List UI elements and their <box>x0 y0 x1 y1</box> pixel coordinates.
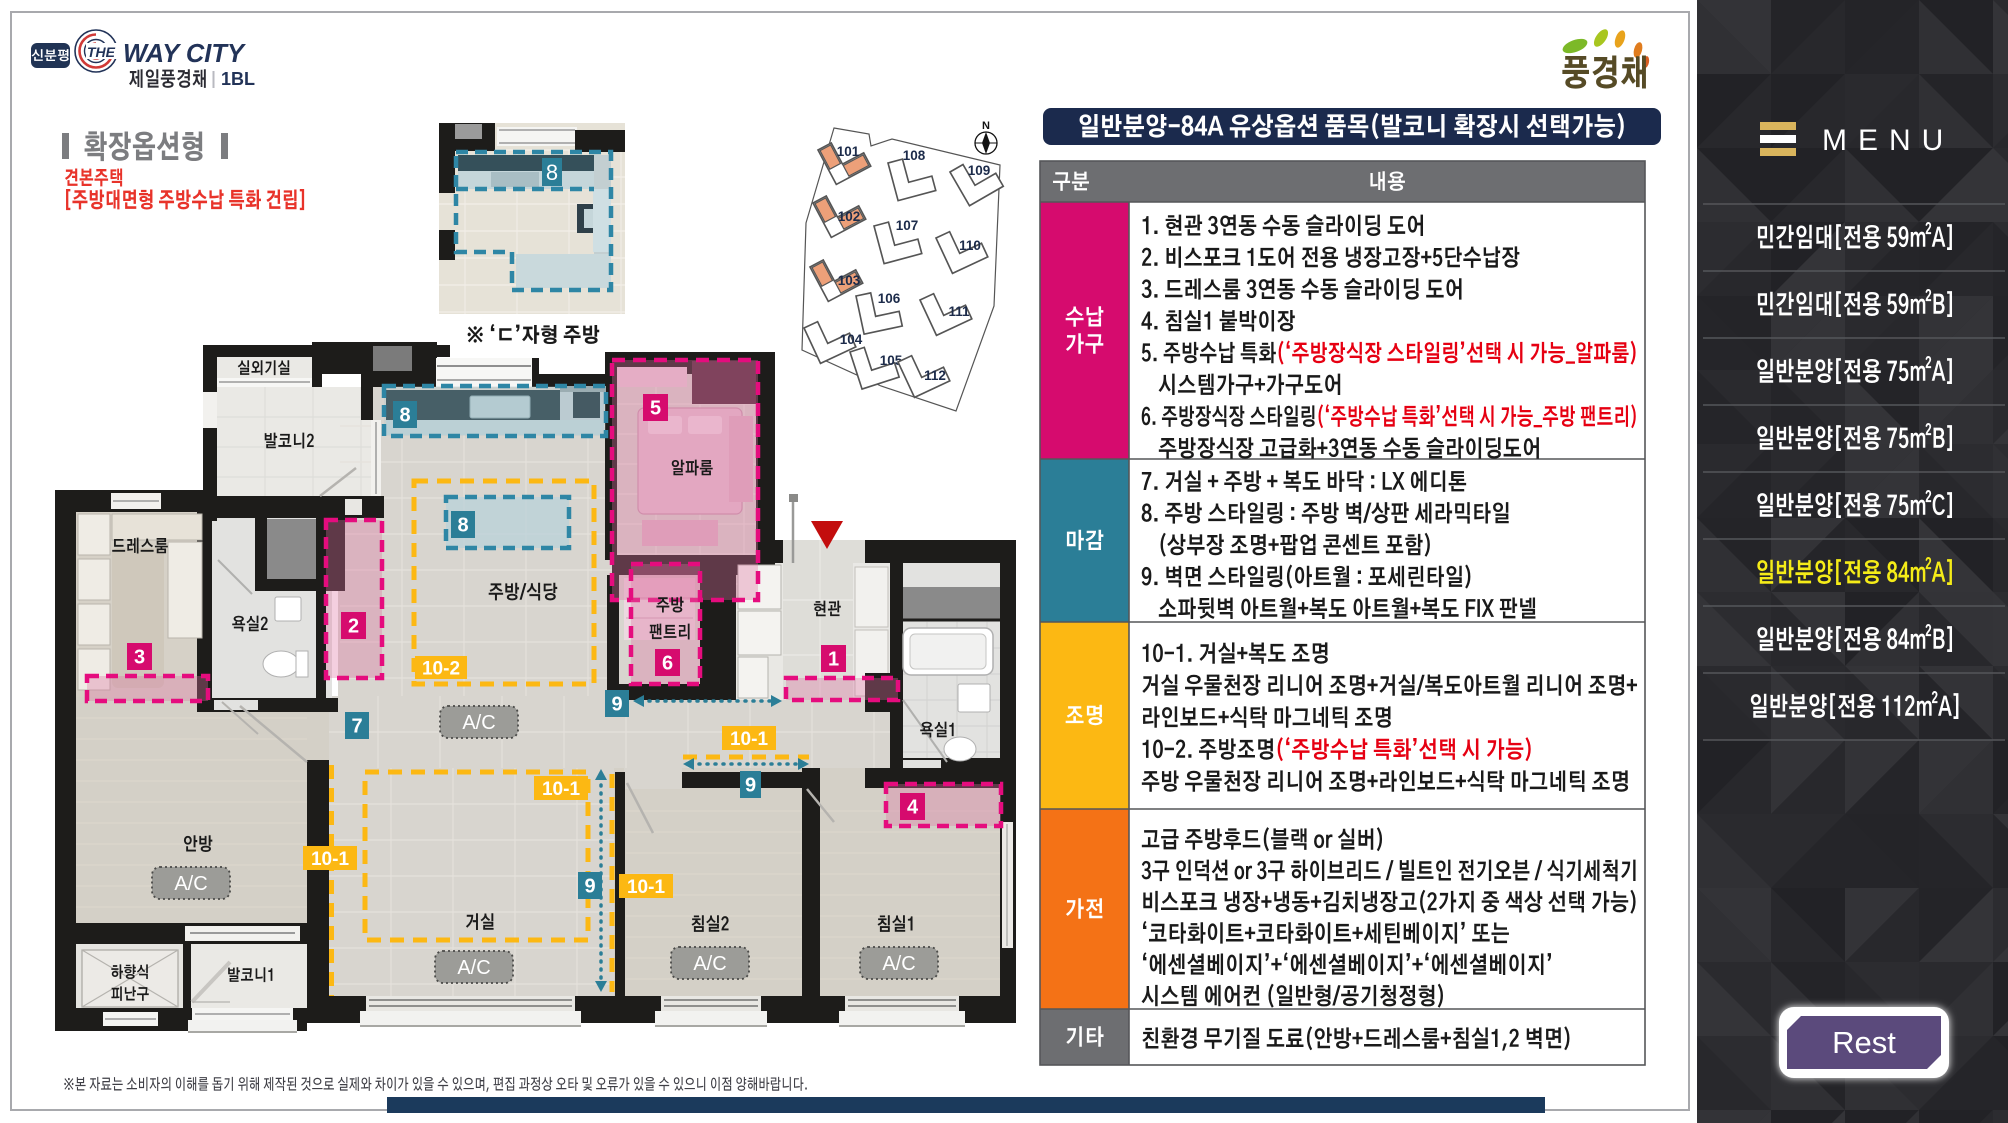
svg-text:8: 8 <box>546 160 558 185</box>
svg-text:102: 102 <box>838 209 861 224</box>
svg-text:109: 109 <box>968 163 991 178</box>
svg-text:9: 9 <box>611 694 622 716</box>
svg-text:106: 106 <box>878 291 901 306</box>
svg-text:10-1: 10-1 <box>311 849 349 870</box>
svg-text:10-1: 10-1 <box>542 779 580 800</box>
svg-text:THE: THE <box>87 44 116 60</box>
svg-text:5: 5 <box>650 398 661 420</box>
svg-text:A/C: A/C <box>693 953 726 975</box>
svg-text:104: 104 <box>840 332 863 347</box>
svg-text:107: 107 <box>896 218 919 233</box>
svg-text:9: 9 <box>745 775 756 797</box>
svg-text:112: 112 <box>924 368 946 383</box>
svg-text:A/C: A/C <box>457 957 490 979</box>
svg-text:108: 108 <box>903 148 926 163</box>
svg-text:10-1: 10-1 <box>730 729 768 750</box>
svg-text:1: 1 <box>828 649 839 671</box>
svg-text:1BL: 1BL <box>221 69 255 89</box>
svg-text:101: 101 <box>837 144 860 159</box>
svg-text:7: 7 <box>351 716 362 738</box>
svg-text:A/C: A/C <box>882 953 915 975</box>
svg-text:MENU: MENU <box>1822 124 1954 157</box>
svg-text:110: 110 <box>959 238 981 253</box>
svg-text:3: 3 <box>134 647 145 669</box>
svg-text:10-1: 10-1 <box>627 877 665 898</box>
svg-text:Rest: Rest <box>1832 1025 1896 1060</box>
svg-text:8: 8 <box>399 405 410 427</box>
svg-text:103: 103 <box>838 273 861 288</box>
svg-text:10-2: 10-2 <box>422 658 460 679</box>
svg-text:111: 111 <box>948 304 970 319</box>
svg-text:8: 8 <box>457 515 468 537</box>
svg-text:9: 9 <box>584 876 595 898</box>
svg-text:A/C: A/C <box>462 712 495 734</box>
svg-text:6: 6 <box>662 653 673 675</box>
svg-text:2: 2 <box>348 616 359 638</box>
svg-text:WAY CITY: WAY CITY <box>123 38 247 68</box>
svg-text:4: 4 <box>907 797 919 819</box>
svg-text:A/C: A/C <box>174 873 207 895</box>
svg-text:N: N <box>982 120 990 132</box>
